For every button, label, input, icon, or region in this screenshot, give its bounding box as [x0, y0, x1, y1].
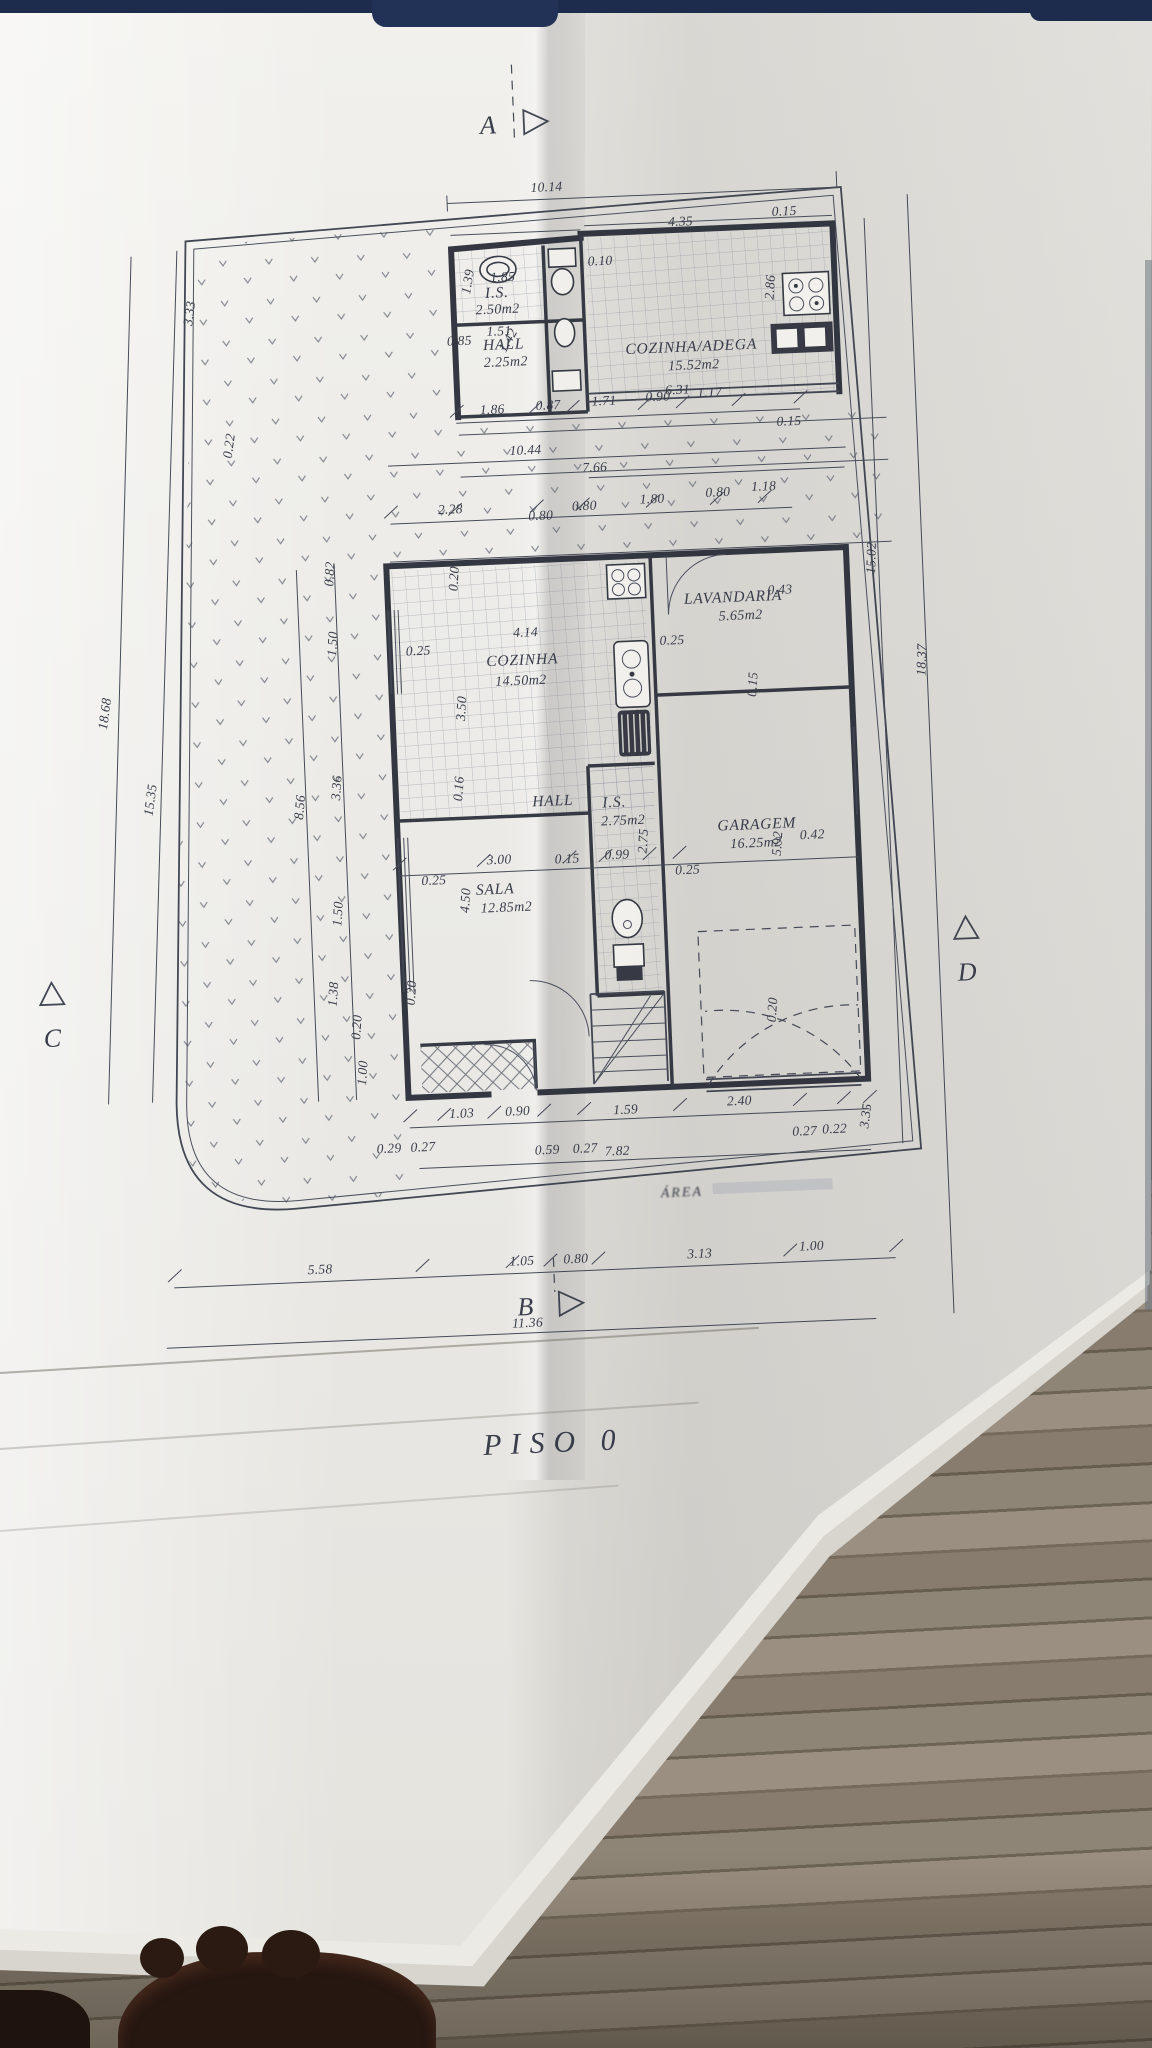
dim-label: 0.15 [771, 203, 796, 219]
dim-label: 0.15 [776, 413, 801, 429]
dim-label: 0.42 [800, 826, 825, 842]
photo-floor-plan: A B C D I.S. 2.50m2 HALL 2.25m2 [0, 0, 1152, 2048]
dim-label: 1.18 [751, 478, 776, 494]
section-label: D [956, 957, 977, 987]
dim-label: 4.50 [457, 888, 474, 914]
dim-label: 1.17 [697, 384, 723, 400]
dim-label: 0.22 [822, 1121, 847, 1137]
porch-hatch [420, 1043, 534, 1094]
dim-label: 3.13 [686, 1245, 712, 1261]
dim-label: 0.20 [445, 566, 462, 592]
dim-label: 0.27 [572, 1140, 598, 1156]
section-marker-c: C [39, 982, 66, 1053]
shower-tray-icon [552, 370, 581, 391]
dim-label: 18.68 [95, 697, 114, 731]
toilet-icon [548, 248, 577, 295]
dim-label: 0.27 [410, 1139, 436, 1155]
room-area: 15.52m2 [668, 357, 720, 374]
dim-label: 1.00 [354, 1060, 371, 1086]
patio-hatch [454, 399, 891, 557]
dim-label: 0.80 [705, 484, 730, 500]
dim-label: 0.15 [554, 850, 579, 866]
dim-label: 0.25 [406, 643, 431, 659]
faint-note: ÁREA [659, 1183, 703, 1202]
dim-label: 0.90 [505, 1103, 530, 1119]
kitchen-sink-icon [770, 321, 833, 354]
stove-icon [606, 564, 645, 600]
dim-label: 4.35 [668, 213, 693, 229]
dim-label: 3.50 [453, 696, 470, 723]
dim-label: 0.85 [447, 333, 472, 349]
dim-label: 2.40 [727, 1092, 752, 1108]
dim-label: 18.37 [913, 643, 929, 676]
dim-label: 0.80 [563, 1250, 588, 1266]
dim-label: 7.66 [582, 459, 607, 475]
dim-label: 0.80 [572, 497, 597, 513]
room-area: 2.75m2 [601, 813, 646, 830]
dim-label: 15.35 [141, 783, 160, 817]
floor-plan-drawing: A B C D I.S. 2.50m2 HALL 2.25m2 [0, 0, 1152, 2048]
dim-label: 0.16 [450, 776, 467, 802]
room-area: 2.25m2 [484, 354, 529, 371]
section-label: A [477, 110, 496, 140]
dim-label: 0.20 [348, 1014, 365, 1040]
bidet-icon [554, 318, 575, 347]
dim-label: 1.50 [329, 901, 346, 927]
dim-label: 0.29 [376, 1140, 401, 1156]
dim-label: 2.86 [761, 274, 778, 300]
room-area: 14.50m2 [495, 673, 547, 690]
dim-label: 15.02 [863, 542, 879, 574]
dim-label: 8.56 [291, 794, 308, 820]
dim-label: 1.03 [449, 1105, 474, 1121]
dim-label: 0.82 [321, 561, 338, 587]
dim-label: 0.25 [421, 872, 446, 888]
dim-label: 1.80 [639, 491, 664, 507]
room-label: COZINHA [486, 650, 559, 670]
room-area: 5.65m2 [718, 608, 763, 625]
dim-label: 0.87 [535, 397, 561, 413]
dim-label: 1.38 [325, 981, 342, 1007]
room-area: 2.50m2 [475, 302, 520, 319]
dim-label: 0.59 [535, 1142, 560, 1158]
stove-icon [782, 272, 830, 316]
dim-label: 5.92 [769, 831, 786, 857]
dim-label: 3.00 [485, 851, 511, 867]
dim-label: 0.10 [587, 253, 612, 269]
dim-label: 1.86 [479, 401, 504, 417]
room-label: HALL [531, 792, 574, 811]
dim-label: 2.28 [438, 501, 463, 517]
dim-label: 1.85 [490, 269, 515, 285]
toe [140, 1938, 184, 1978]
kitchen-sink-icon [614, 640, 653, 756]
dim-label: 0.25 [675, 861, 700, 877]
stairs [590, 991, 668, 1084]
room-label: I.S. [484, 284, 510, 302]
dim-label: 3.35 [856, 1102, 874, 1130]
dim-label: 1.50 [324, 631, 341, 657]
room-label: SALA [476, 880, 515, 899]
dim-label: 0.20 [403, 980, 420, 1006]
dim-label: 0.15 [744, 671, 761, 697]
section-label: C [43, 1023, 62, 1053]
dim-label: 0.99 [604, 846, 629, 862]
dim-label: 1.05 [509, 1253, 534, 1269]
dim-label: 0.80 [528, 507, 553, 523]
toe [196, 1926, 248, 1972]
section-marker-d: D [953, 916, 980, 987]
room-area: 12.85m2 [480, 900, 532, 917]
dim-label: 7.82 [605, 1143, 630, 1159]
floor-title: PISO 0 [481, 1423, 625, 1462]
dim-label: 0.43 [767, 581, 792, 597]
dim-label: 0.25 [659, 632, 684, 648]
room-label: I.S. [601, 793, 627, 811]
dim-label: 11.36 [512, 1314, 543, 1330]
dim-label: 0.20 [764, 997, 781, 1023]
dim-label: 1.00 [799, 1238, 824, 1254]
dim-label: 4.14 [513, 624, 538, 640]
dim-label: 0.90 [645, 388, 670, 404]
dim-label: 10.44 [509, 442, 541, 458]
dim-label: 10.14 [530, 179, 562, 195]
toe [262, 1930, 320, 1978]
dim-label: 2.75 [635, 828, 652, 854]
dim-label: 1.59 [613, 1101, 638, 1117]
faint-note-blur [712, 1178, 832, 1194]
dim-label: 3.36 [328, 775, 345, 802]
dim-label: 5.58 [307, 1261, 332, 1277]
section-marker-a: A [475, 63, 548, 142]
dim-label: 0.27 [792, 1123, 818, 1139]
dim-label: 1.71 [591, 393, 616, 409]
